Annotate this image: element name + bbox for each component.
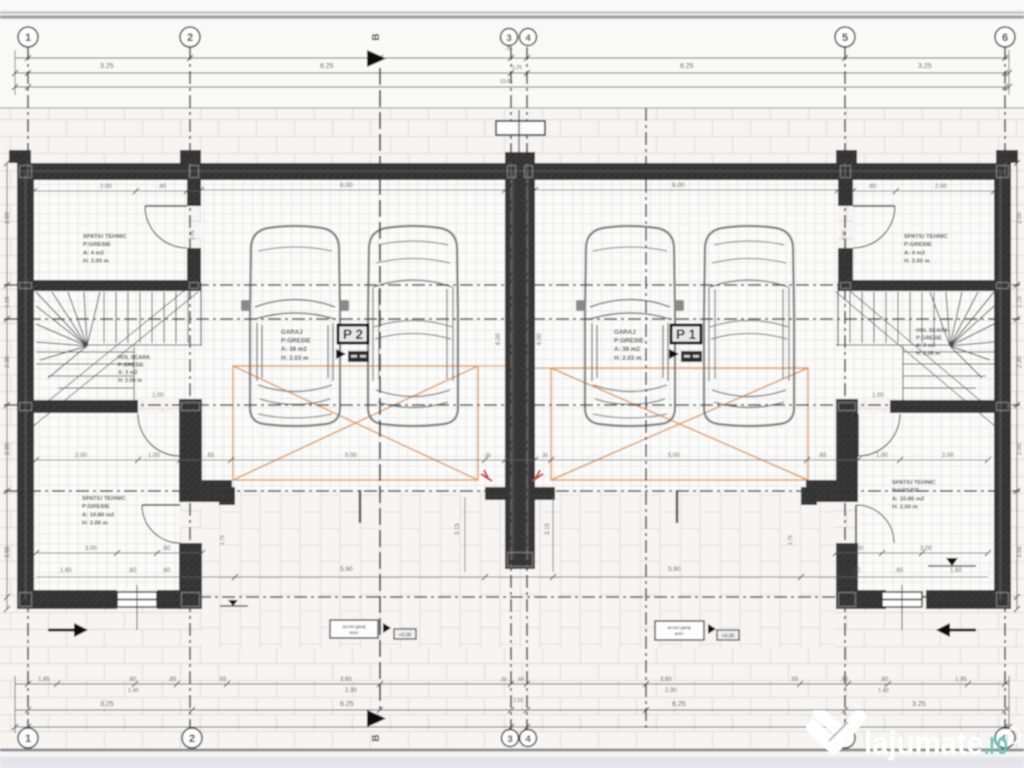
- svg-text:.60: .60: [895, 568, 904, 574]
- svg-text:3.25: 3.25: [100, 63, 114, 70]
- svg-text:H: 2.00 m: H: 2.00 m: [904, 259, 930, 265]
- svg-text:2.30: 2.30: [5, 356, 11, 368]
- svg-text:1.85: 1.85: [38, 677, 50, 683]
- svg-text:1.15: 1.15: [5, 296, 11, 308]
- svg-text:1.75: 1.75: [788, 535, 794, 545]
- svg-text:1.40: 1.40: [878, 688, 889, 694]
- svg-text:B: B: [371, 734, 382, 741]
- svg-text:6.00: 6.00: [496, 333, 502, 345]
- svg-text:A: 3 m2: A: 3 m2: [118, 370, 137, 376]
- svg-text:H: 2.00 m: H: 2.00 m: [82, 521, 108, 527]
- svg-text:.60: .60: [868, 184, 877, 190]
- svg-text:3.25: 3.25: [100, 701, 114, 708]
- svg-text:.55: .55: [218, 677, 227, 683]
- svg-text:.60: .60: [852, 568, 861, 574]
- svg-text:.35: .35: [484, 453, 491, 459]
- svg-text:5.00: 5.00: [345, 453, 357, 459]
- svg-text:3.15: 3.15: [545, 523, 551, 535]
- svg-text:SPATIU TEHNIC: SPATIU TEHNIC: [83, 234, 127, 240]
- svg-text:A: 36 m2: A: 36 m2: [281, 346, 307, 353]
- svg-text:.ro: .ro: [984, 725, 1008, 761]
- svg-text:.60: .60: [162, 546, 171, 552]
- svg-text:6.25: 6.25: [672, 701, 686, 708]
- svg-text:3.00: 3.00: [920, 546, 932, 552]
- svg-text:GARAJ: GARAJ: [614, 329, 636, 336]
- svg-text:2.05: 2.05: [842, 230, 848, 240]
- svg-text:1.00: 1.00: [872, 393, 884, 399]
- svg-text:1.75: 1.75: [220, 535, 226, 545]
- svg-text:HOL SCARA: HOL SCARA: [916, 328, 948, 334]
- svg-text:2.00: 2.00: [1017, 443, 1023, 455]
- svg-text:5.90: 5.90: [340, 566, 353, 573]
- svg-text:1: 1: [25, 733, 31, 745]
- svg-text:1.40: 1.40: [128, 688, 139, 694]
- svg-text:3.60: 3.60: [660, 677, 672, 683]
- svg-text:P:GRESIE: P:GRESIE: [892, 488, 920, 494]
- svg-text:P:GRESIE: P:GRESIE: [614, 338, 644, 345]
- svg-text:3.25: 3.25: [912, 701, 926, 708]
- svg-text:P:GRESIE: P:GRESIE: [904, 242, 932, 248]
- svg-text:P:GRESIE: P:GRESIE: [916, 336, 942, 342]
- svg-text:5.90: 5.90: [668, 566, 681, 573]
- svg-text:P 2: P 2: [343, 327, 363, 342]
- svg-text:6: 6: [1002, 32, 1008, 44]
- svg-text:.85: .85: [168, 677, 177, 683]
- svg-text:P:GRESIE: P:GRESIE: [118, 363, 144, 369]
- svg-text:6.00: 6.00: [537, 333, 543, 345]
- svg-text:.35: .35: [505, 46, 512, 52]
- svg-text:1.00: 1.00: [876, 453, 888, 459]
- svg-text:.55: .55: [790, 677, 799, 683]
- svg-text:3.60: 3.60: [340, 677, 352, 683]
- svg-text:2.00: 2.00: [942, 453, 954, 459]
- svg-text:.35: .35: [500, 677, 507, 683]
- svg-text:.65: .65: [818, 453, 827, 459]
- svg-text:2: 2: [187, 32, 193, 44]
- svg-text:3: 3: [506, 33, 511, 44]
- svg-text:1: 1: [25, 32, 31, 44]
- svg-text:GARAJ: GARAJ: [281, 329, 303, 336]
- svg-text:.60: .60: [162, 568, 171, 574]
- svg-text:SPATIU TEHNIC: SPATIU TEHNIC: [82, 496, 126, 502]
- svg-text:2.00: 2.00: [75, 453, 87, 459]
- svg-text:.60: .60: [128, 568, 137, 574]
- svg-text:4: 4: [525, 734, 531, 745]
- svg-text:6.00: 6.00: [340, 182, 353, 189]
- svg-text:+0.00: +0.00: [399, 633, 412, 639]
- svg-text:5: 5: [842, 32, 848, 44]
- svg-text:2.00: 2.00: [100, 184, 112, 190]
- svg-text:SPATIU TEHNIC: SPATIU TEHNIC: [892, 480, 936, 486]
- svg-text:2: 2: [189, 733, 195, 745]
- svg-text:H: 2.00 m: H: 2.00 m: [83, 259, 109, 265]
- svg-text:A: 10.80 m2: A: 10.80 m2: [82, 512, 114, 518]
- svg-text:2.00: 2.00: [1017, 212, 1023, 224]
- svg-text:acces garaj: acces garaj: [667, 625, 690, 630]
- svg-text:3.00: 3.00: [85, 546, 97, 552]
- svg-text:H: 2.03 m: H: 2.03 m: [281, 355, 309, 362]
- svg-text:1.00: 1.00: [148, 453, 160, 459]
- svg-text:B: B: [371, 33, 382, 40]
- svg-text:.60: .60: [855, 546, 864, 552]
- svg-text:2.00: 2.00: [935, 184, 947, 190]
- svg-text:2.30: 2.30: [345, 688, 357, 694]
- svg-text:2.05: 2.05: [190, 230, 196, 240]
- svg-text:P 1: P 1: [676, 327, 697, 342]
- svg-text:A: 4 m2: A: 4 m2: [83, 250, 104, 256]
- svg-text:A: 10.80 m2: A: 10.80 m2: [892, 496, 924, 502]
- svg-text:lajumate: lajumate: [864, 725, 983, 761]
- svg-text:2.30: 2.30: [665, 688, 677, 694]
- svg-text:3.25: 3.25: [918, 63, 932, 70]
- svg-text:6.00: 6.00: [672, 182, 685, 189]
- svg-text:3.15: 3.15: [455, 523, 461, 535]
- svg-text:1.60: 1.60: [950, 568, 962, 574]
- svg-text:H: 2.03 m: H: 2.03 m: [614, 355, 642, 362]
- svg-text:6.25: 6.25: [320, 63, 334, 70]
- svg-text:3: 3: [507, 734, 512, 745]
- svg-text:5.00: 5.00: [668, 453, 680, 459]
- svg-text:1.15: 1.15: [1017, 296, 1023, 308]
- svg-text:3.55: 3.55: [1017, 546, 1023, 558]
- svg-text:+0.00: +0.00: [722, 634, 735, 640]
- svg-text:H: 2.00 m: H: 2.00 m: [892, 505, 918, 511]
- svg-text:P:GRESIE: P:GRESIE: [281, 338, 311, 345]
- svg-text:4: 4: [525, 33, 531, 44]
- svg-text:6.25: 6.25: [340, 701, 354, 708]
- svg-text:.65: .65: [206, 453, 215, 459]
- svg-text:2.00: 2.00: [5, 212, 11, 224]
- svg-text:.35: .35: [541, 453, 548, 459]
- svg-text:.80: .80: [128, 677, 137, 683]
- svg-text:2.00: 2.00: [5, 443, 11, 455]
- svg-text:acces garaj: acces garaj: [342, 624, 365, 629]
- svg-text:1.00: 1.00: [152, 393, 164, 399]
- svg-text:A: 3 m2: A: 3 m2: [916, 343, 935, 349]
- svg-text:6.25: 6.25: [680, 63, 694, 70]
- svg-text:A: 4 m2: A: 4 m2: [904, 250, 925, 256]
- svg-text:3.55: 3.55: [5, 546, 11, 558]
- svg-text:P:GRESIE: P:GRESIE: [82, 504, 110, 510]
- svg-text:HOL SCARA: HOL SCARA: [118, 355, 150, 361]
- svg-text:1.95: 1.95: [955, 677, 967, 683]
- svg-text:auto: auto: [350, 630, 359, 635]
- svg-text:2.30: 2.30: [1017, 356, 1023, 368]
- svg-text:13.85: 13.85: [500, 79, 513, 85]
- svg-text:auto: auto: [675, 631, 684, 636]
- svg-text:SPATIU TEHNIC: SPATIU TEHNIC: [904, 234, 948, 240]
- svg-text:A: 36 m2: A: 36 m2: [614, 346, 640, 353]
- svg-text:P:GRESIE: P:GRESIE: [83, 242, 111, 248]
- svg-text:1.25: 1.25: [512, 65, 522, 71]
- svg-text:.80: .80: [880, 677, 889, 683]
- svg-text:1.60: 1.60: [60, 568, 72, 574]
- svg-text:H: 2.05 m: H: 2.05 m: [118, 378, 142, 384]
- svg-text:1.10: 1.10: [513, 698, 523, 704]
- svg-text:H: 2.05 m: H: 2.05 m: [916, 351, 940, 357]
- svg-text:.60: .60: [158, 184, 167, 190]
- svg-text:.60: .60: [517, 677, 524, 683]
- svg-text:.85: .85: [840, 677, 849, 683]
